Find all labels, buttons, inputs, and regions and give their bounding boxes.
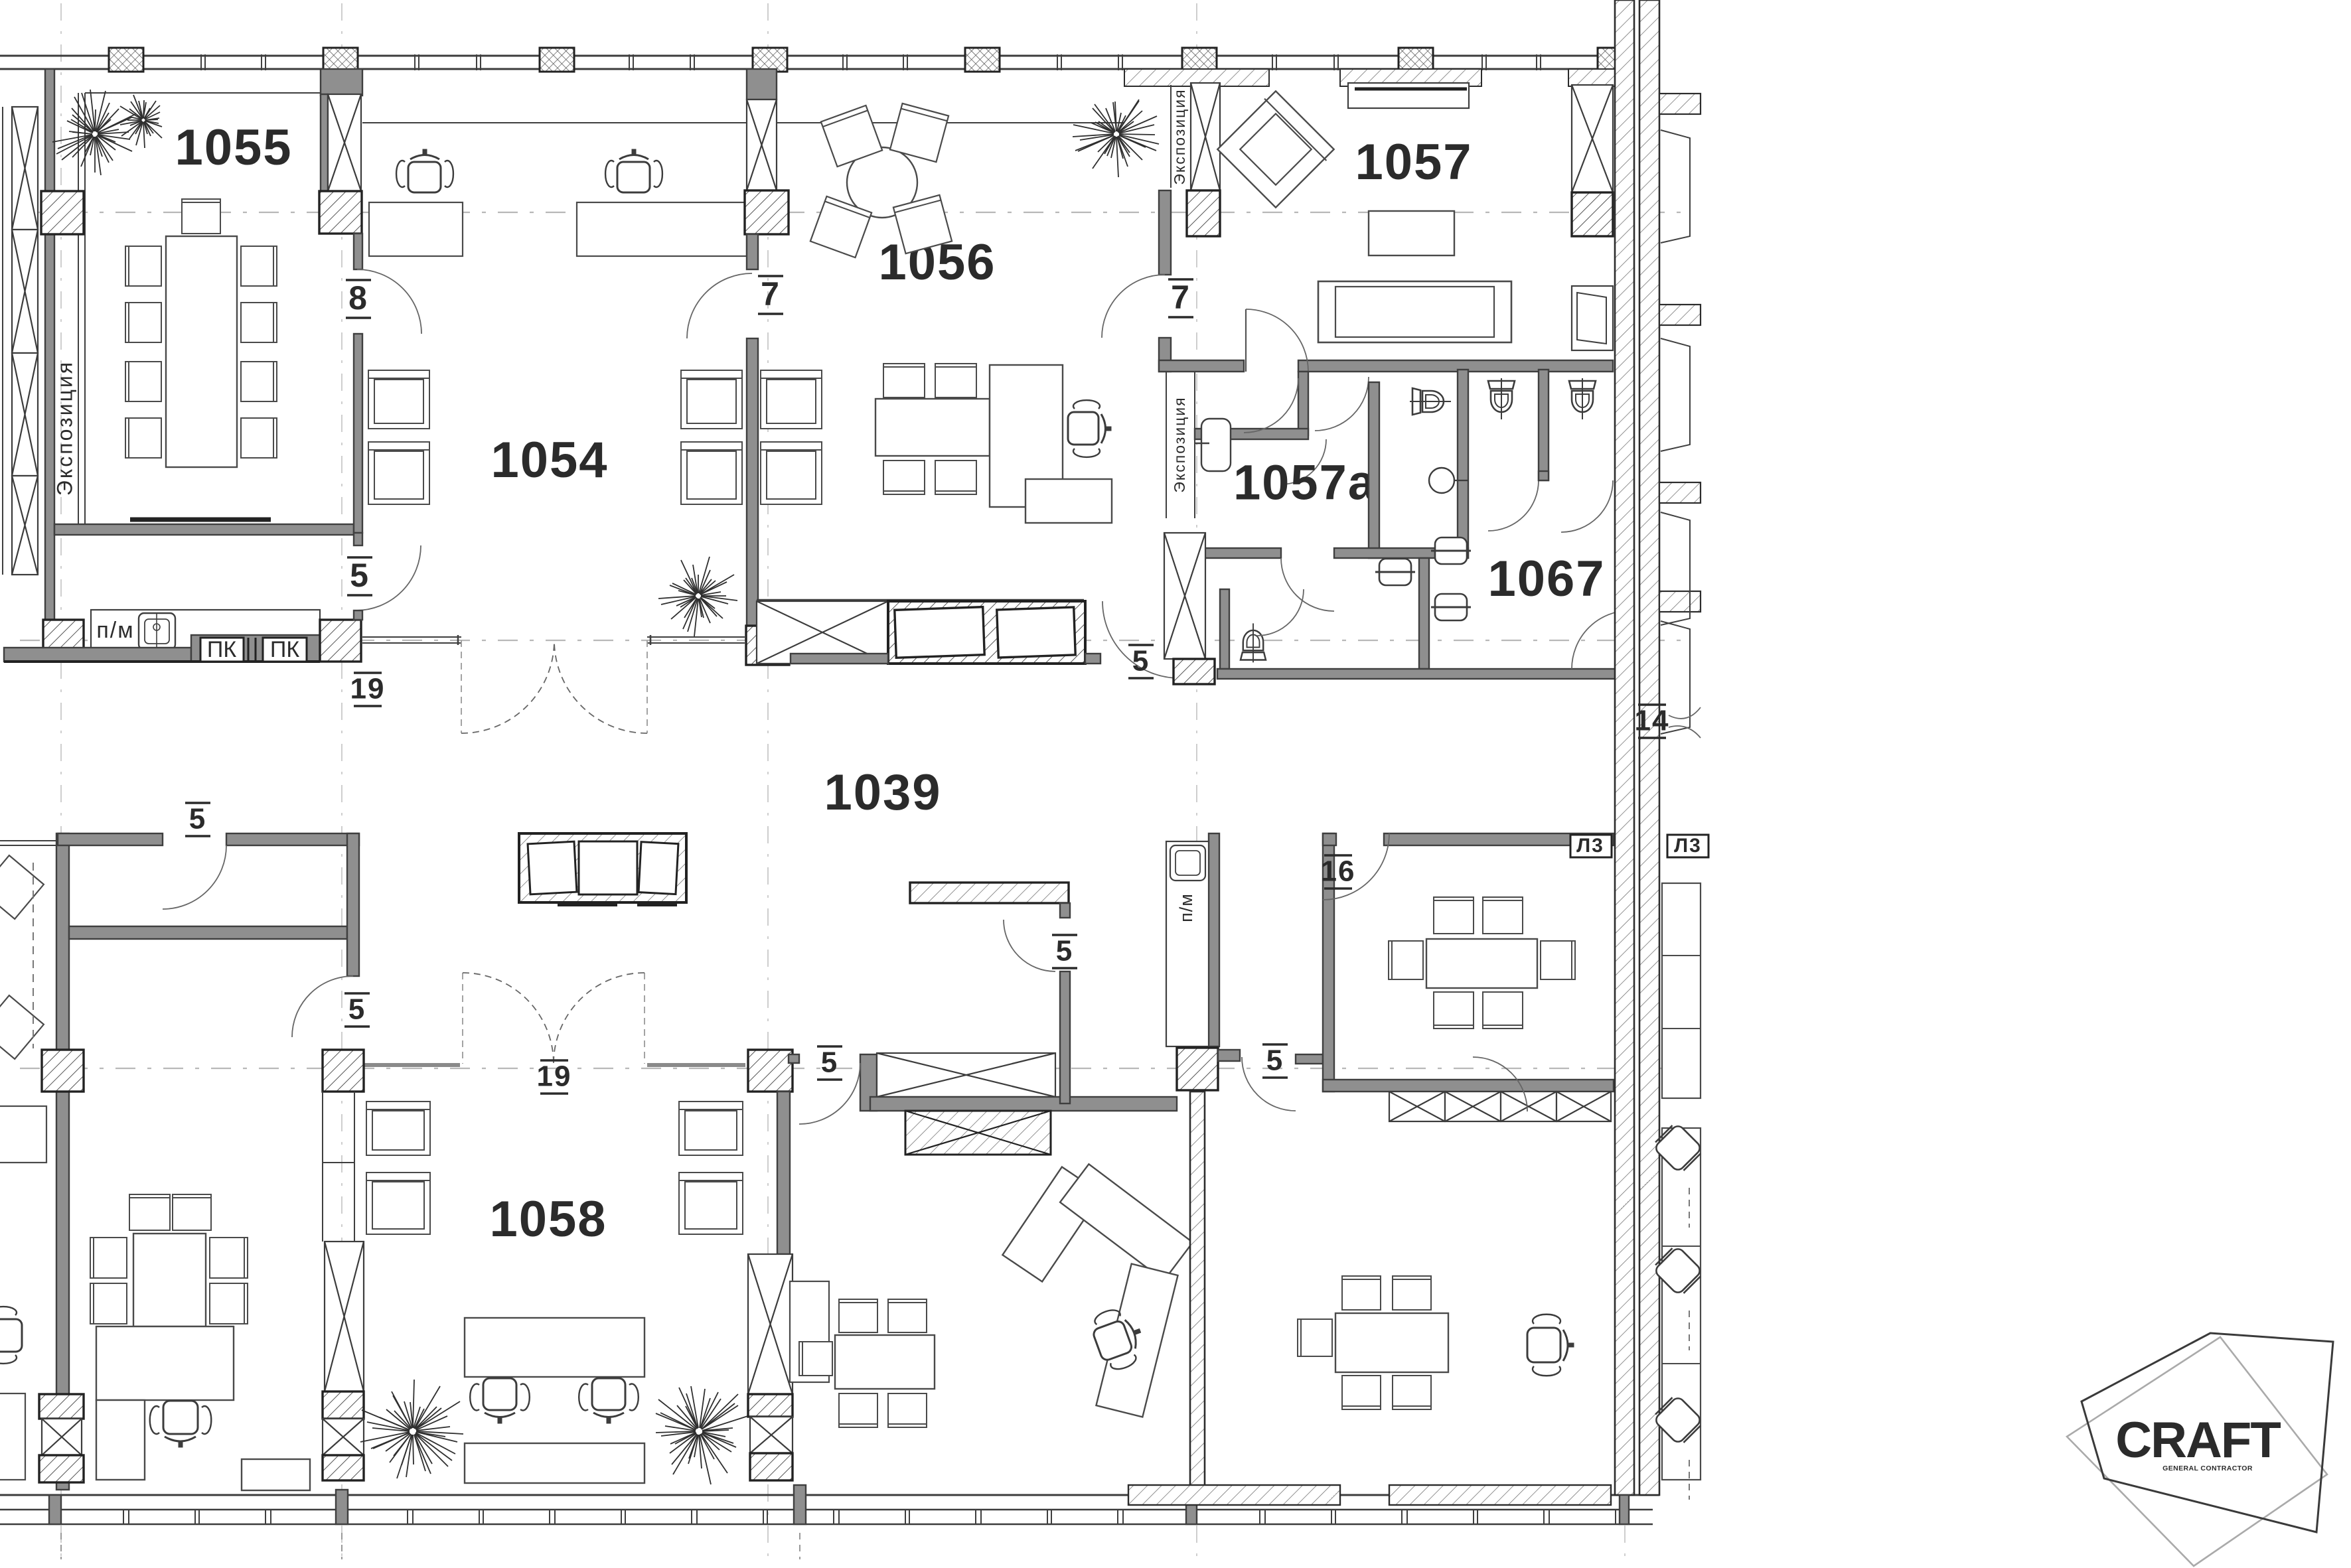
svg-text:8: 8	[348, 279, 368, 317]
svg-text:7: 7	[761, 275, 781, 313]
svg-text:ПК: ПК	[270, 637, 299, 662]
svg-text:19: 19	[350, 673, 386, 705]
svg-text:7: 7	[1171, 279, 1191, 316]
svg-text:1055: 1055	[175, 119, 292, 176]
svg-text:п/м: п/м	[1176, 893, 1196, 922]
svg-text:1057a: 1057a	[1233, 455, 1377, 510]
svg-text:Экспозиция: Экспозиция	[52, 360, 76, 496]
svg-text:14: 14	[1635, 705, 1670, 737]
svg-text:Л3: Л3	[1674, 835, 1702, 857]
svg-text:5: 5	[1056, 935, 1073, 967]
svg-text:5: 5	[348, 993, 366, 1026]
svg-text:5: 5	[350, 557, 370, 594]
svg-text:5: 5	[1266, 1044, 1284, 1077]
svg-text:п/м: п/м	[96, 618, 134, 643]
svg-text:1057: 1057	[1355, 134, 1472, 190]
svg-text:1039: 1039	[824, 764, 941, 821]
svg-text:16: 16	[1321, 855, 1356, 888]
svg-text:5: 5	[1132, 645, 1150, 677]
svg-text:5: 5	[821, 1046, 838, 1079]
svg-text:CRAFT: CRAFT	[2115, 1412, 2281, 1468]
svg-text:1054: 1054	[491, 432, 608, 488]
svg-text:1067: 1067	[1487, 551, 1605, 607]
svg-text:19: 19	[537, 1060, 572, 1093]
svg-text:1058: 1058	[489, 1191, 607, 1247]
svg-text:Л3: Л3	[1576, 835, 1604, 857]
svg-text:5: 5	[189, 803, 206, 835]
svg-text:GENERAL CONTRACTOR: GENERAL CONTRACTOR	[2162, 1464, 2253, 1472]
svg-text:Экспозиция: Экспозиция	[1171, 88, 1188, 184]
svg-text:ПК: ПК	[207, 637, 236, 662]
svg-text:Экспозиция: Экспозиция	[1171, 396, 1188, 492]
